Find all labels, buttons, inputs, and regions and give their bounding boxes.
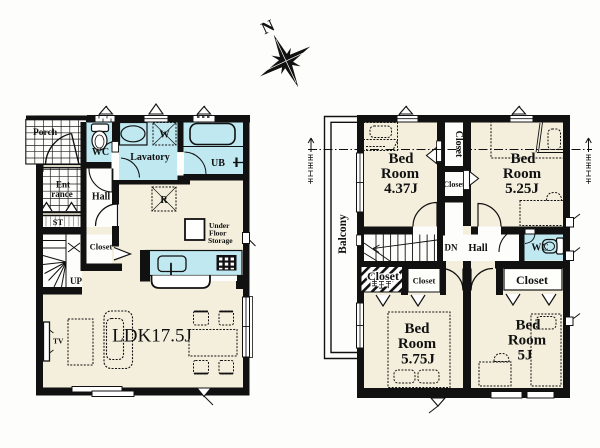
- svg-text:rance: rance: [51, 189, 73, 199]
- svg-text:Bed: Bed: [515, 318, 541, 334]
- svg-text:Room: Room: [381, 166, 420, 182]
- svg-text:Porch–: Porch–: [33, 128, 62, 138]
- svg-text:Closet: Closet: [453, 131, 464, 158]
- svg-text:LDK17.5J: LDK17.5J: [112, 326, 192, 347]
- svg-text:R: R: [160, 195, 168, 206]
- svg-text:5.25J: 5.25J: [505, 181, 539, 197]
- svg-text:ST: ST: [53, 217, 64, 227]
- svg-text:WC: WC: [92, 147, 109, 158]
- svg-text:Balcony: Balcony: [337, 214, 349, 254]
- svg-text:Bed: Bed: [388, 151, 414, 167]
- svg-text:Hall: Hall: [468, 243, 487, 254]
- svg-text:5.75J: 5.75J: [401, 352, 435, 368]
- svg-text:UP: UP: [70, 276, 82, 286]
- svg-text:UB: UB: [211, 158, 225, 169]
- svg-text:Closet: Closet: [516, 273, 548, 287]
- svg-text:Bed: Bed: [404, 321, 430, 337]
- svg-text:Closet: Closet: [90, 242, 113, 252]
- svg-text:TV: TV: [53, 337, 64, 346]
- svg-text:DN: DN: [445, 243, 458, 253]
- svg-text:Room: Room: [398, 336, 437, 352]
- svg-text:Lavatory: Lavatory: [130, 152, 169, 163]
- svg-text:Hall: Hall: [92, 192, 111, 203]
- svg-text:Bed: Bed: [510, 151, 536, 167]
- svg-text:4.37J: 4.37J: [384, 181, 418, 197]
- svg-text:Room: Room: [503, 166, 542, 182]
- svg-text:Closet: Closet: [413, 276, 436, 286]
- svg-text:Storage: Storage: [208, 236, 233, 245]
- svg-text:WC: WC: [531, 243, 548, 254]
- svg-text:Closet: Closet: [443, 180, 465, 189]
- svg-text:W: W: [160, 130, 170, 141]
- svg-text:Room: Room: [508, 333, 547, 349]
